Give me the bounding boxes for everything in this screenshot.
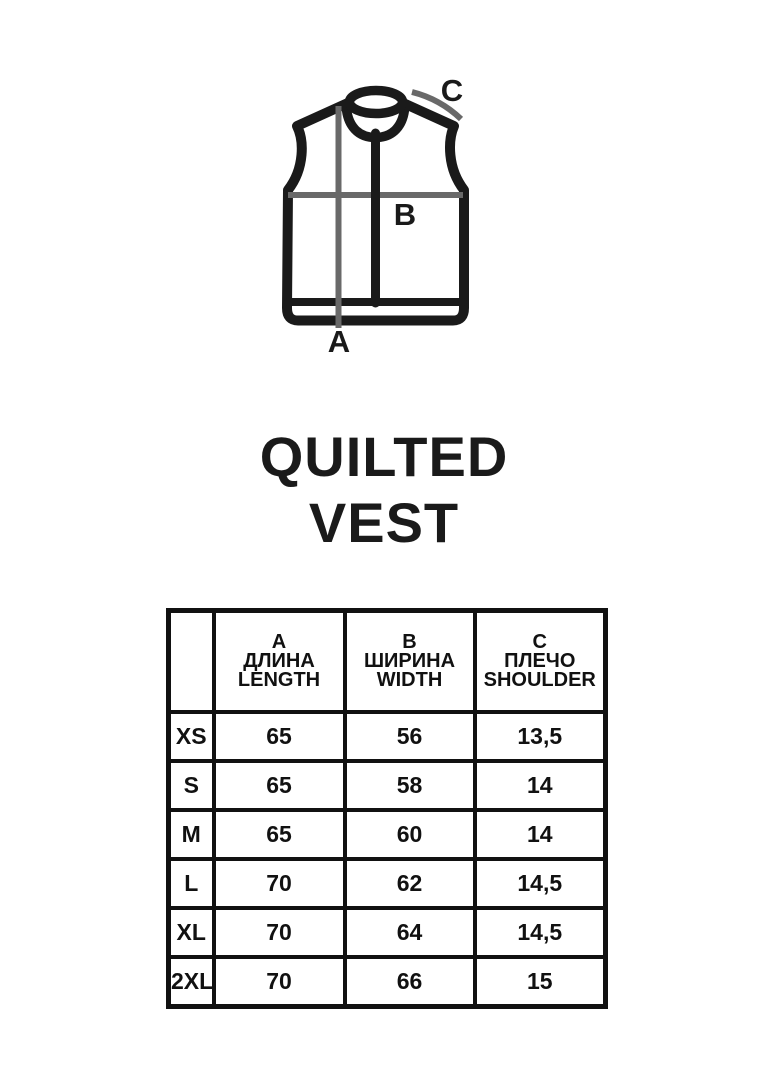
column-label-en: WIDTH (347, 671, 473, 690)
length-value: 65 (214, 761, 345, 810)
width-value: 64 (345, 908, 475, 957)
measure-label-c: C (441, 73, 463, 108)
column-label-en: LENGTH (216, 671, 343, 690)
column-header-shoulder: C ПЛЕЧО SHOULDER (475, 611, 606, 713)
width-value: 60 (345, 810, 475, 859)
size-label: XL (169, 908, 214, 957)
size-row-m: M 65 60 14 (169, 810, 606, 859)
length-value: 65 (214, 712, 345, 761)
column-label-en: SHOULDER (477, 671, 604, 690)
column-header-width: B ШИРИНА WIDTH (345, 611, 475, 713)
measure-label-a: A (328, 324, 350, 359)
size-table: A ДЛИНА LENGTH B ШИРИНА WIDTH C ПЛЕЧО SH… (166, 608, 608, 1009)
vest-collar-ring (350, 91, 403, 114)
length-value: 70 (214, 957, 345, 1007)
size-table-corner-cell (169, 611, 214, 713)
shoulder-value: 15 (475, 957, 606, 1007)
page-title-line1: QUILTED (0, 424, 768, 490)
column-header-length: A ДЛИНА LENGTH (214, 611, 345, 713)
size-label: M (169, 810, 214, 859)
size-row-2xl: 2XL 70 66 15 (169, 957, 606, 1007)
width-value: 66 (345, 957, 475, 1007)
size-label: S (169, 761, 214, 810)
page-title-line2: VEST (0, 490, 768, 556)
measure-label-b: B (394, 197, 416, 232)
shoulder-value: 13,5 (475, 712, 606, 761)
shoulder-value: 14,5 (475, 908, 606, 957)
width-value: 62 (345, 859, 475, 908)
length-value: 65 (214, 810, 345, 859)
shoulder-value: 14 (475, 761, 606, 810)
shoulder-value: 14 (475, 810, 606, 859)
width-value: 58 (345, 761, 475, 810)
length-value: 70 (214, 859, 345, 908)
size-label: L (169, 859, 214, 908)
size-label: 2XL (169, 957, 214, 1007)
length-value: 70 (214, 908, 345, 957)
size-row-xl: XL 70 64 14,5 (169, 908, 606, 957)
shoulder-value: 14,5 (475, 859, 606, 908)
vest-diagram: A B C (0, 0, 768, 390)
size-row-s: S 65 58 14 (169, 761, 606, 810)
size-row-xs: XS 65 56 13,5 (169, 712, 606, 761)
size-label: XS (169, 712, 214, 761)
page-title: QUILTED VEST (0, 424, 768, 556)
width-value: 56 (345, 712, 475, 761)
size-row-l: L 70 62 14,5 (169, 859, 606, 908)
size-table-header-row: A ДЛИНА LENGTH B ШИРИНА WIDTH C ПЛЕЧО SH… (169, 611, 606, 713)
